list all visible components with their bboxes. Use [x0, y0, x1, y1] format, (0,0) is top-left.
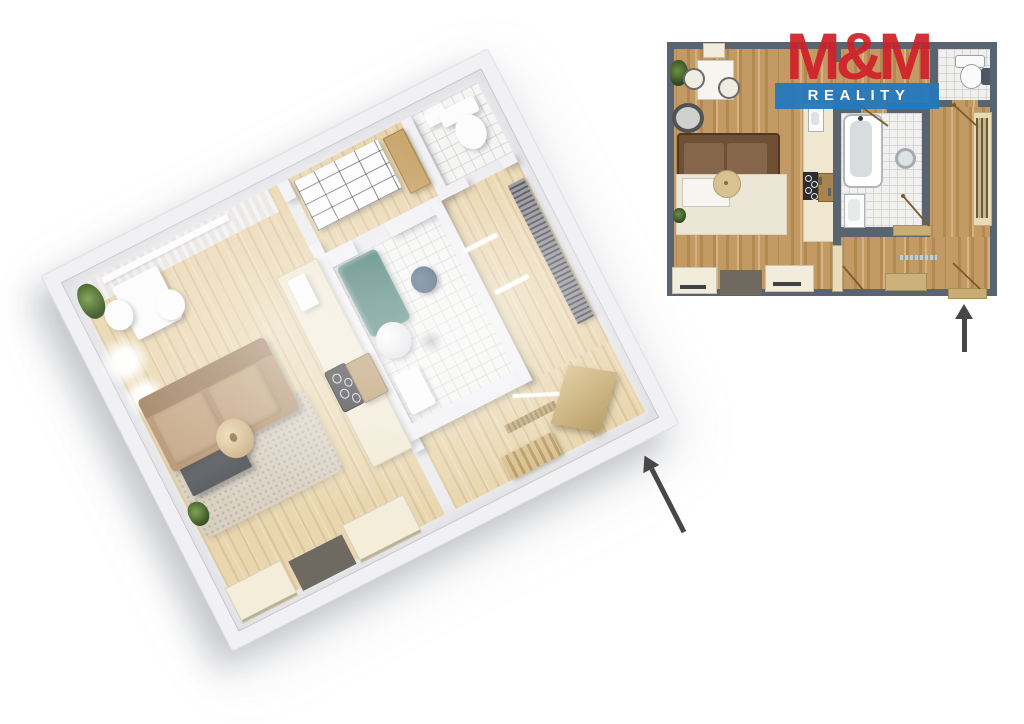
floor-plan-3d [110, 140, 610, 560]
bath-threshold-2d [893, 225, 932, 236]
floor-plan-3d-rotated [42, 49, 678, 650]
burner-2d [811, 181, 818, 188]
arrow-shaft [649, 468, 686, 534]
door-leaf-2d [832, 245, 843, 292]
washbasin-bowl-2d [848, 199, 860, 221]
entrance-arrow-3d-icon [636, 451, 693, 537]
window-2d [765, 265, 814, 292]
chair-mark-2d [819, 177, 822, 185]
wc-doorway-floor-2d [952, 100, 978, 107]
bathroom-right-wall-2d [922, 103, 930, 237]
dining-chair-2d [683, 68, 705, 90]
pouf-button-2d [724, 181, 728, 185]
burner-2d [805, 187, 812, 194]
entrance-arrow-2d-icon [955, 304, 973, 352]
arrow-head [636, 452, 659, 474]
bench-2d [885, 273, 927, 291]
tv-bench-2d [720, 270, 762, 295]
side-table-2d [672, 103, 704, 133]
logo-reality-banner: REALITY [775, 83, 939, 109]
wardrobe-rail-2d [976, 118, 988, 218]
burner-2d [811, 193, 818, 200]
toilet-bowl-2d [960, 64, 983, 89]
dining-chair-2d [718, 77, 740, 99]
wc-bottom-wall-2d [978, 100, 990, 107]
window-sill-mark-2d [773, 282, 801, 286]
burner-2d [805, 175, 812, 182]
bathtub-faucet-2d [858, 116, 863, 121]
window-2d [703, 43, 725, 58]
floor-drain-2d [895, 148, 916, 169]
wall-2d [833, 94, 841, 245]
chair-mark-2d [828, 188, 831, 196]
window-2d [672, 267, 717, 294]
entrance-threshold-2d [948, 288, 987, 299]
outer-walls-3d [42, 49, 678, 650]
floor-plan-2d: M&M REALITY [667, 42, 997, 296]
kitchen-sink-bowl-2d [811, 112, 819, 125]
floorplan-image: M&M REALITY [0, 0, 1024, 724]
bathtub-basin-2d [850, 121, 872, 177]
arrow-shaft [962, 319, 967, 352]
doormat-2d [898, 255, 937, 260]
mm-reality-logo: M&M REALITY [775, 31, 939, 109]
logo-mm-text: M&M [775, 31, 939, 83]
window-sill-mark-2d [680, 285, 706, 289]
arrow-head [955, 304, 973, 319]
corner-basin-2d [981, 68, 990, 85]
